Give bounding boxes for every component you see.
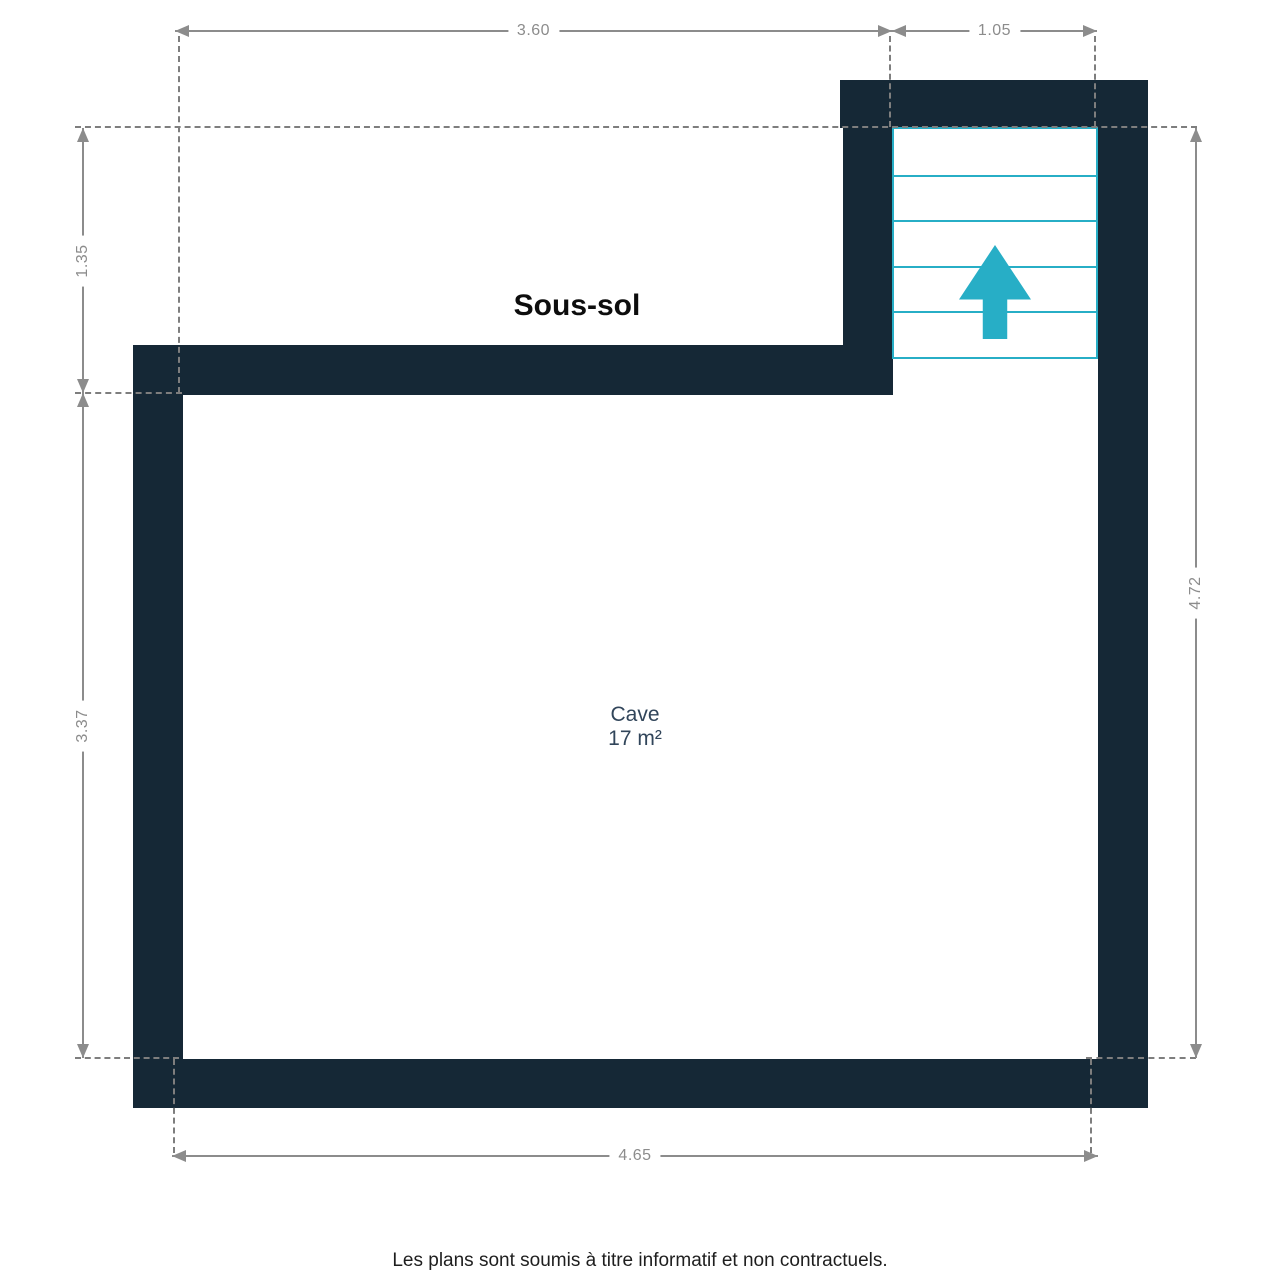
dimension-arrow-icon [878, 25, 892, 37]
dimension-value: 3.37 [74, 700, 92, 751]
dimension-top-left-segment: 3.60 [175, 24, 892, 38]
stair-tread-line [894, 175, 1096, 177]
dimension-arrow-icon [77, 379, 89, 393]
dimension-value: 4.65 [609, 1147, 660, 1165]
dimension-arrow-icon [1190, 1044, 1202, 1058]
dimension-arrow-icon [77, 393, 89, 407]
dimension-left-lower-segment: 3.37 [76, 393, 90, 1058]
dimension-value: 3.60 [508, 22, 559, 40]
dimension-value: 1.05 [969, 22, 1020, 40]
witness-line-bottom-right [1086, 1057, 1196, 1059]
dimension-value: 4.72 [1187, 567, 1205, 618]
wall-middle-horizontal [133, 345, 893, 395]
dimension-arrow-icon [1190, 128, 1202, 142]
dimension-arrow-icon [77, 1044, 89, 1058]
witness-line-bottom-right-vertical [1090, 1059, 1092, 1153]
witness-line-middle-left [75, 392, 182, 394]
stair-tread-line [894, 220, 1096, 222]
witness-line-upper [75, 126, 1197, 128]
floor-title: Sous-sol [427, 289, 727, 323]
dimension-arrow-icon [77, 128, 89, 142]
dimension-arrow-icon [175, 25, 189, 37]
dimension-arrow-icon [1084, 1150, 1098, 1162]
wall-left [133, 345, 183, 1108]
dimension-arrow-icon [892, 25, 906, 37]
room-area: 17 m² [535, 727, 735, 751]
room-name: Cave [535, 703, 735, 727]
witness-line-left-bottom [173, 1059, 175, 1153]
dimension-value: 1.35 [74, 235, 92, 286]
dimension-arrow-icon [172, 1150, 186, 1162]
witness-line-stair-right [1094, 36, 1096, 127]
stairs-up-arrow-icon [959, 245, 1031, 339]
wall-bottom [133, 1059, 1148, 1108]
room-label: Cave 17 m² [535, 703, 735, 751]
staircase [892, 127, 1098, 359]
witness-line-stair-left [889, 36, 891, 127]
dimension-left-upper-segment: 1.35 [76, 128, 90, 393]
dimension-bottom-segment: 4.65 [172, 1149, 1098, 1163]
witness-line-left-top [178, 36, 180, 393]
dimension-right-segment: 4.72 [1189, 128, 1203, 1058]
disclaimer-text: Les plans sont soumis à titre informatif… [0, 1250, 1280, 1272]
dimension-top-right-segment: 1.05 [892, 24, 1097, 38]
dimension-arrow-icon [1083, 25, 1097, 37]
wall-right [1098, 80, 1148, 1108]
witness-line-bottom-left [75, 1057, 179, 1059]
